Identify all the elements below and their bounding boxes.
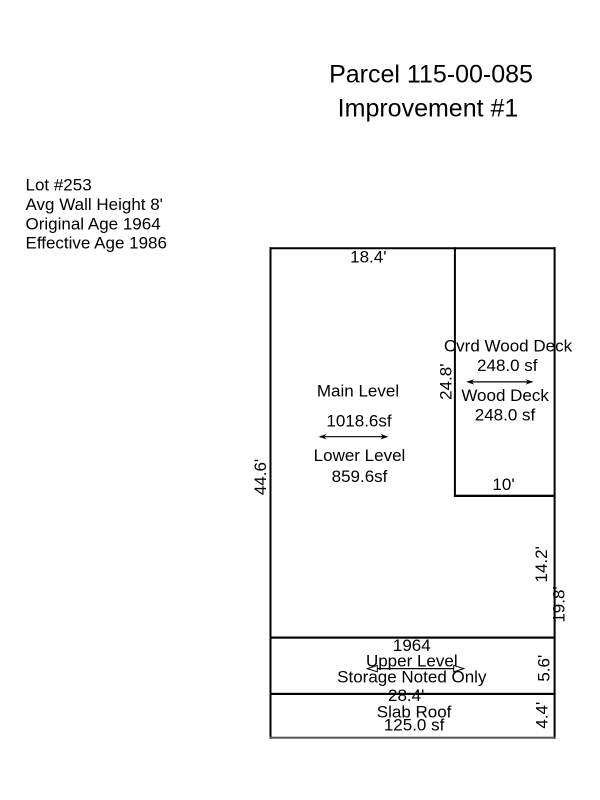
svg-text:44.6': 44.6' [251,459,270,495]
svg-text:Wood Deck: Wood Deck [461,386,549,405]
svg-text:859.6sf: 859.6sf [332,467,388,486]
svg-text:10': 10' [492,475,514,494]
svg-text:Effective Age 1986: Effective Age 1986 [26,234,167,253]
svg-text:5.6': 5.6' [534,655,553,682]
svg-text:18.4': 18.4' [350,248,386,267]
svg-text:Main Level: Main Level [317,382,399,401]
svg-text:Cvrd Wood Deck: Cvrd Wood Deck [444,336,573,355]
svg-text:24.8': 24.8' [437,364,456,400]
svg-text:248.0 sf: 248.0 sf [477,356,538,375]
svg-text:1018.6sf: 1018.6sf [326,412,391,431]
svg-text:Lot #253: Lot #253 [26,176,92,195]
svg-text:Parcel 115-00-085: Parcel 115-00-085 [329,61,533,89]
svg-text:Original Age 1964: Original Age 1964 [26,214,161,233]
svg-text:Lower Level: Lower Level [314,446,406,465]
svg-text:Improvement #1: Improvement #1 [338,94,519,122]
svg-text:Storage Noted Only: Storage Noted Only [337,667,487,686]
svg-text:4.4': 4.4' [533,702,552,729]
svg-text:125.0 sf: 125.0 sf [384,716,445,735]
svg-text:14.2': 14.2' [532,546,551,582]
svg-text:19.8': 19.8' [550,586,569,622]
svg-text:248.0 sf: 248.0 sf [475,406,536,425]
svg-text:Avg Wall Height 8': Avg Wall Height 8' [26,195,163,214]
